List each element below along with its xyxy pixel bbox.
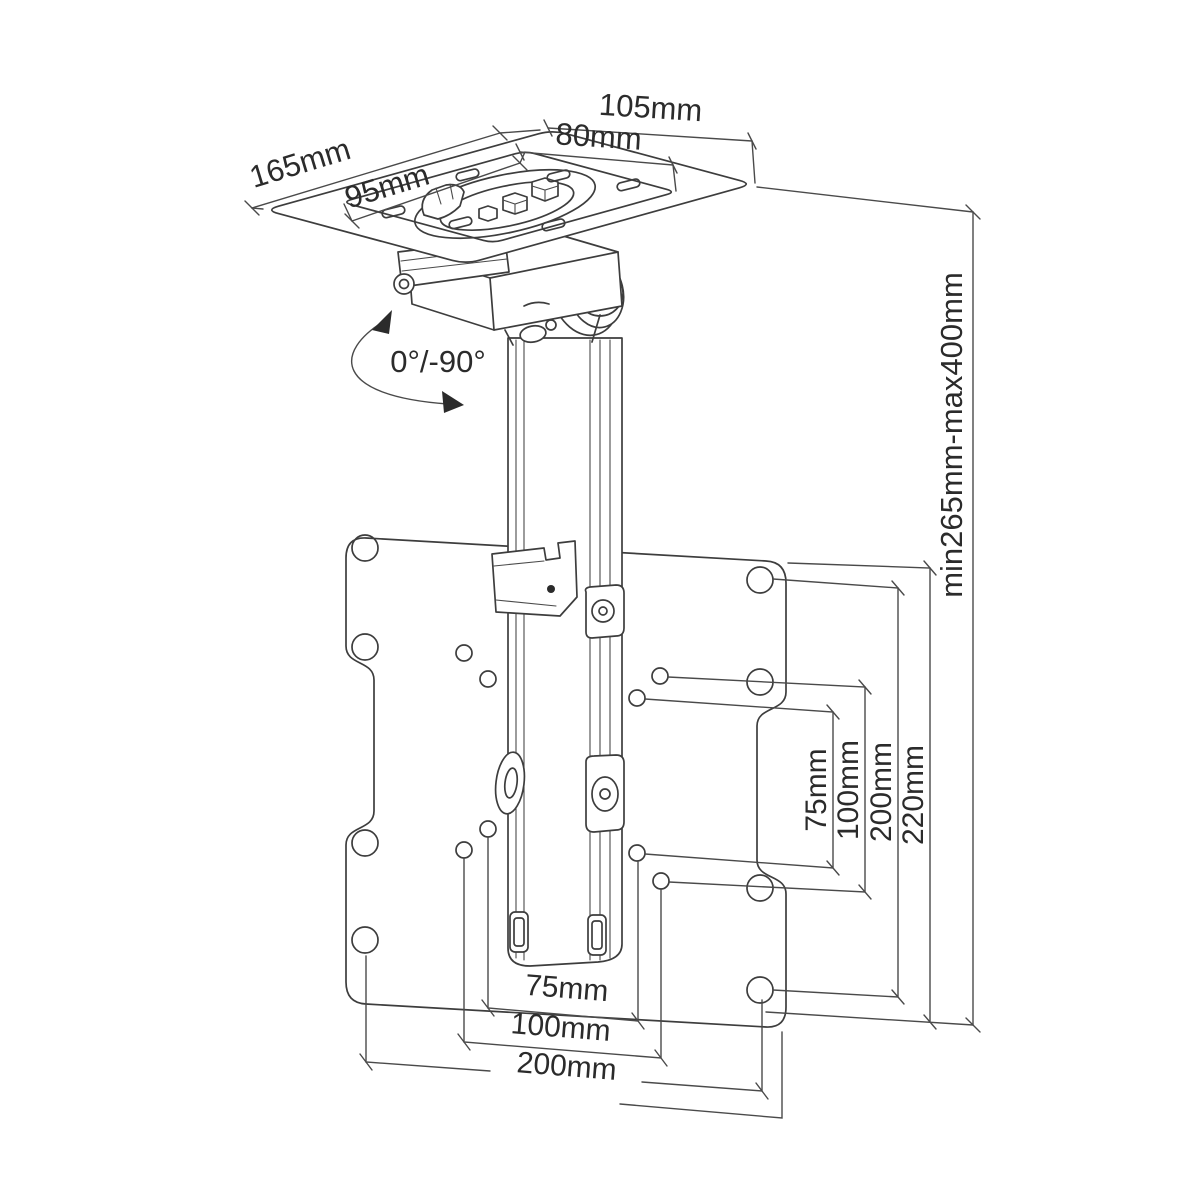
dim-label-vesa-h-75: 75mm [524,969,610,1008]
arrowhead-right-icon [442,391,464,413]
rotation-arrow: 0°/-90° [352,310,486,413]
dim-label-vesa-h-200: 200mm [516,1046,618,1087]
dim-label-height-range: min265mm-max400mm [934,272,969,598]
dim-label-plate-outer-depth: 165mm [245,131,354,195]
dim-height-range: min265mm-max400mm [757,187,980,1032]
dim-label-plate-inner-width: 80mm [555,116,643,156]
column-body [508,338,622,966]
mount-diagram: 0°/-90° 105mm 80mm 165mm 95mm min265mm-m… [0,0,1200,1200]
dim-label-vesa-v-75: 75mm [800,748,833,831]
column-clamp [492,541,577,616]
dim-label-vesa-h-100: 100mm [510,1007,612,1048]
technical-drawing-page: 0°/-90° 105mm 80mm 165mm 95mm min265mm-m… [0,0,1200,1200]
telescopic-column [492,338,624,966]
dim-label-vesa-v-100: 100mm [832,740,865,840]
hinge-bolt [394,274,414,294]
arrowhead-up-icon [372,310,392,334]
center-bolt [479,206,497,221]
dim-label-vesa-v-220: 220mm [897,745,930,845]
dim-label-vesa-v-200: 200mm [865,742,898,842]
dim-label-tilt-range: 0°/-90° [390,344,485,379]
